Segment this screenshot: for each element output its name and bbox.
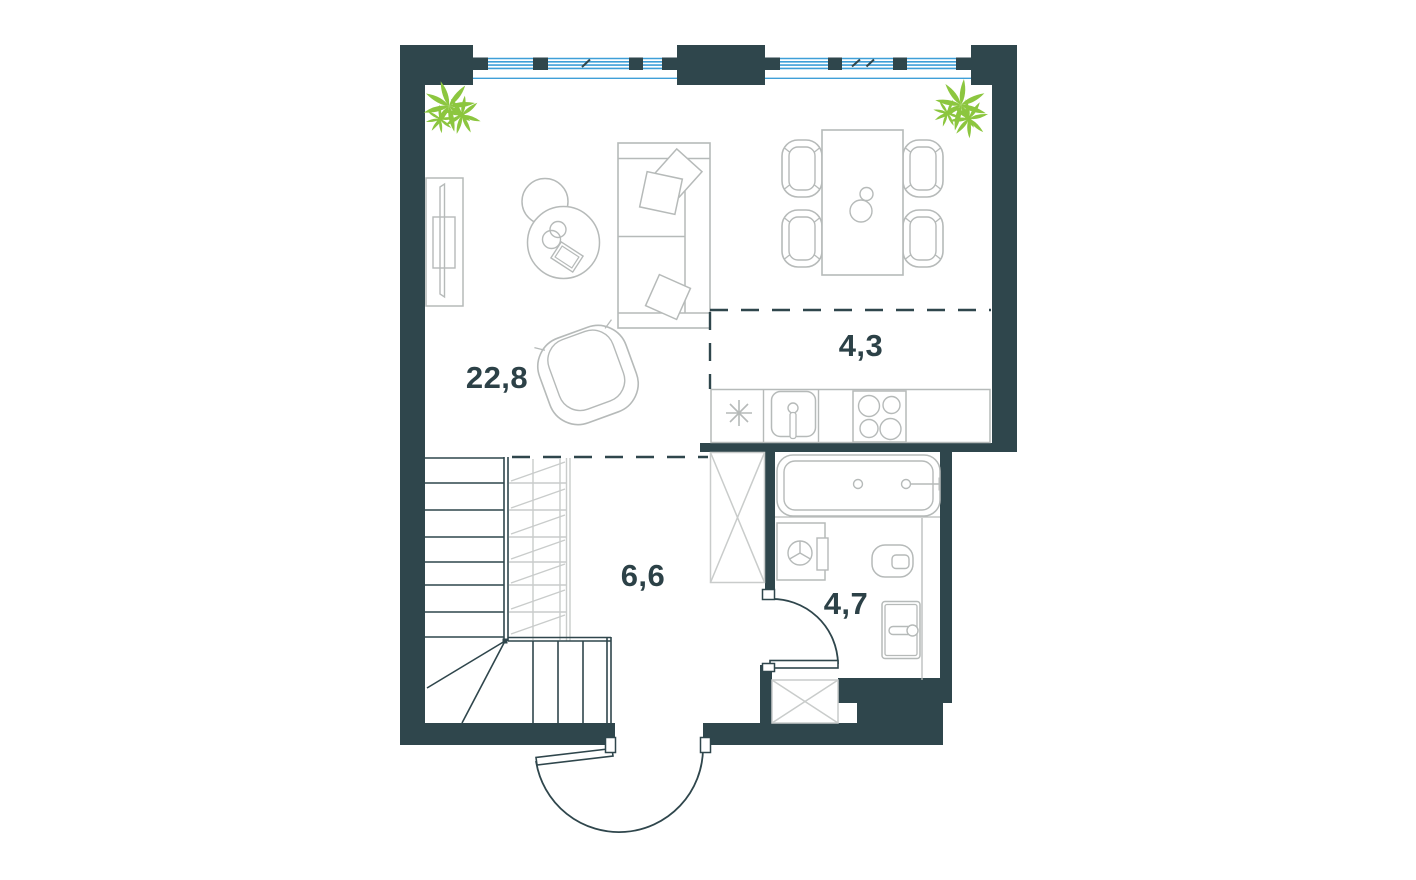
toilet — [872, 545, 913, 577]
kitchen-counter — [711, 390, 990, 443]
dining-chair — [903, 210, 943, 267]
washing-machine — [777, 523, 828, 580]
coffee-table — [528, 207, 600, 279]
table-decor — [860, 188, 873, 201]
stair-newel — [503, 639, 508, 644]
floor-plan-page: 22,8 4,3 6,6 4,7 — [0, 0, 1416, 880]
dining-chair — [782, 140, 822, 197]
room-label-hall: 6,6 — [621, 558, 666, 593]
table-decor — [850, 200, 872, 222]
stove — [853, 391, 906, 442]
room-label-living: 22,8 — [466, 360, 528, 395]
floor-plan: 22,8 4,3 6,6 4,7 — [0, 0, 1416, 880]
kitchen-sink — [772, 392, 816, 439]
door-leaf — [770, 661, 838, 669]
bathtub — [777, 455, 940, 516]
tv-stand — [426, 178, 463, 306]
sofa — [618, 143, 710, 328]
duct-shaft-icon — [772, 680, 838, 723]
dining-chair — [782, 210, 822, 267]
room-label-bath: 4,7 — [824, 586, 869, 621]
wardrobe-icon — [711, 453, 765, 583]
dining-table — [822, 130, 903, 275]
washbasin — [882, 602, 920, 659]
dining-chair — [903, 140, 943, 197]
room-label-kitchen: 4,3 — [839, 328, 884, 363]
pillow — [640, 172, 683, 215]
